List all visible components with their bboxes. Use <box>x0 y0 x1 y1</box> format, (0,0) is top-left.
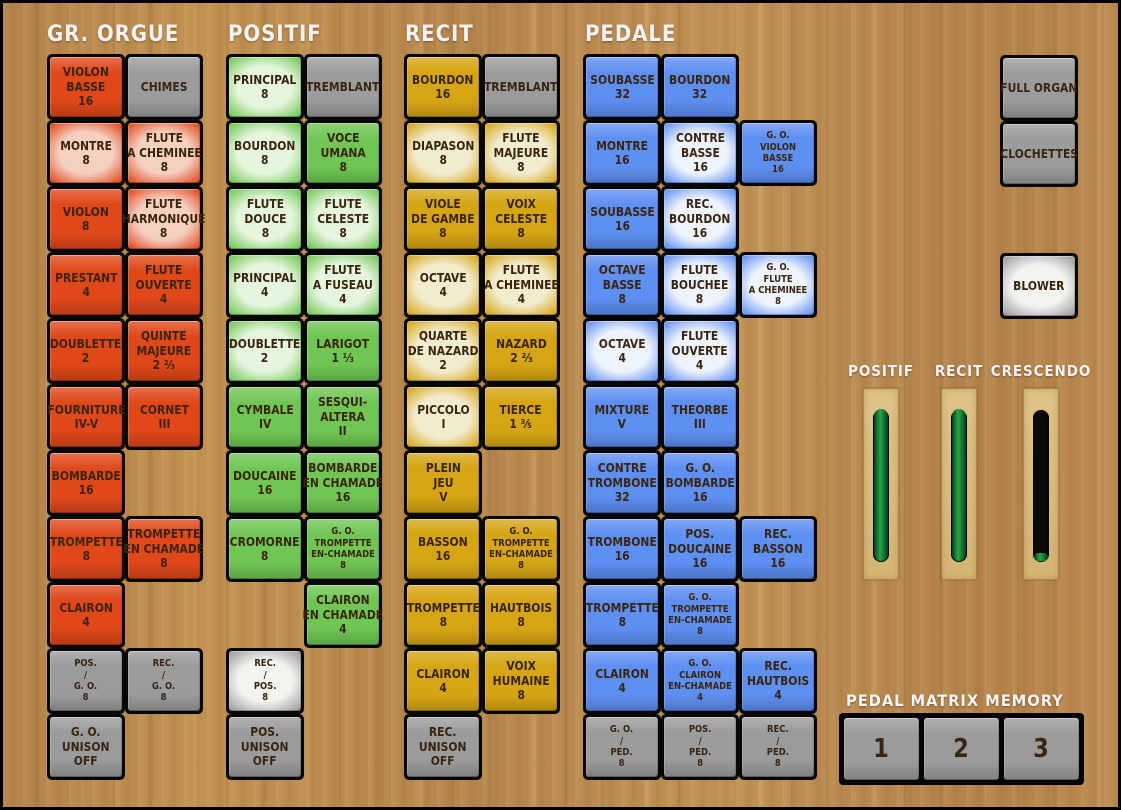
button-face: G. O.VIOLONBASSE16 <box>742 123 814 183</box>
button-label: SOUBASSE32 <box>590 73 654 102</box>
label-line: OFF <box>419 754 467 769</box>
label-line: HAUTBOIS <box>490 601 552 616</box>
slider-slot <box>1033 410 1049 562</box>
stop-viole-de-gambe-8[interactable]: VIOLEDE GAMBE8 <box>404 186 482 252</box>
crescendo-slider[interactable] <box>1023 388 1059 580</box>
stop-bombarde-16[interactable]: BOMBARDE16 <box>47 450 125 516</box>
stop-sesqui-altera-ii[interactable]: SESQUI-ALTERAII <box>304 384 382 450</box>
stop-prestant-4[interactable]: PRESTANT4 <box>47 252 125 318</box>
label-line: PICCOLO <box>417 403 469 418</box>
label-line: 16 <box>669 226 730 241</box>
stop-tremblant[interactable]: TREMBLANT <box>304 54 382 120</box>
label-line: 16 <box>753 556 803 571</box>
label-line: 8 <box>74 692 97 703</box>
stop-doublette-2[interactable]: DOUBLETTE2 <box>226 318 304 384</box>
stop-voce-umana-8[interactable]: VOCEUMANA8 <box>304 120 382 186</box>
button-label: PICCOLOI <box>417 403 469 432</box>
label-line: MAJEURE <box>137 344 192 359</box>
label-line: 8 <box>63 219 109 234</box>
button-face: FLUTEA CHEMINEE8 <box>128 123 200 183</box>
stop-plein-jeu-v[interactable]: PLEINJEUV <box>404 450 482 516</box>
button-face: VOIXHUMAINE8 <box>485 651 557 711</box>
recit-slider[interactable] <box>941 388 977 580</box>
button-face: FLUTEMAJEURE8 <box>485 123 557 183</box>
button-label: PRINCIPAL4 <box>233 271 296 300</box>
button-face: FLUTEOUVERTE4 <box>128 255 200 315</box>
button-face: BOMBARDE16 <box>50 453 122 513</box>
button-label: CYMBALEIV <box>236 403 293 432</box>
label-line: VIOLON <box>63 65 109 80</box>
label-line: QUARTE <box>408 329 479 344</box>
stop-flute-a-cheminee-4[interactable]: FLUTEA CHEMINEE4 <box>482 252 560 318</box>
label-line: 8 <box>610 758 633 769</box>
stop-clairon-4[interactable]: CLAIRON4 <box>583 648 661 714</box>
label-line: 4 <box>484 292 559 307</box>
button-label: G. O.UNISONOFF <box>62 725 110 769</box>
label-line: TROMPETTE <box>668 604 732 615</box>
button-label: CONTRETROMBONE32 <box>587 461 656 505</box>
stop-voix-humaine-8[interactable]: VOIXHUMAINE8 <box>482 648 560 714</box>
button-face: DOUBLETTE2 <box>50 321 122 381</box>
stop-flute-majeure-8[interactable]: FLUTEMAJEURE8 <box>482 120 560 186</box>
stop-trompette-en-chamade-8[interactable]: TROMPETTEEN CHAMADE8 <box>125 516 203 582</box>
button-label: FLUTEA CHEMINEE8 <box>127 131 202 175</box>
label-line: TROMPETTE <box>124 527 205 542</box>
stop-flute-ouverte-4[interactable]: FLUTEOUVERTE4 <box>661 318 739 384</box>
label-line: 8 <box>490 615 552 630</box>
label-line: SOUBASSE <box>590 73 654 88</box>
button-label: G. O.FLUTEA CHEMINEE8 <box>749 262 808 307</box>
label-line: 4 <box>59 615 112 630</box>
label-line: A CHEMINEE <box>749 285 808 296</box>
button-label: TROMPETTE8 <box>50 535 123 564</box>
label-line: 8 <box>127 160 202 175</box>
button-label: MIXTUREV <box>595 403 650 432</box>
label-line: FLUTE <box>671 263 729 278</box>
label-line: LARIGOT <box>317 337 370 352</box>
label-line: SESQUI- <box>318 395 367 410</box>
memory-button-label: 3 <box>1034 734 1050 764</box>
label-line: DOUCAINE <box>233 469 296 484</box>
label-line: / <box>767 736 789 747</box>
stop-flute-a-fuseau-4[interactable]: FLUTEA FUSEAU4 <box>304 252 382 318</box>
button-label: FLUTEA CHEMINEE4 <box>484 263 559 307</box>
stop-g-o-ped-8[interactable]: G. O./PED.8 <box>583 714 661 780</box>
label-line: 32 <box>669 87 730 102</box>
memory-button-2[interactable]: 2 <box>924 718 999 780</box>
label-line: BOURDON <box>234 139 295 154</box>
stop-tierce-1[interactable]: TIERCE1 ⅗ <box>482 384 560 450</box>
label-line: BOURDON <box>669 212 730 227</box>
button-face: REC./G. O.8 <box>128 651 200 711</box>
label-line: 8 <box>230 549 300 564</box>
stop-violon-8[interactable]: VIOLON8 <box>47 186 125 252</box>
label-line: TROMPETTE <box>50 535 123 550</box>
label-line: BOURDON <box>412 73 473 88</box>
stop-rec-g-o-8[interactable]: REC./G. O.8 <box>125 648 203 714</box>
button-label: TREMBLANT <box>306 80 379 95</box>
button-face: REC./POS.8 <box>229 651 301 711</box>
stop-quarte-de-nazard-2[interactable]: QUARTEDE NAZARD2 <box>404 318 482 384</box>
button-face: FULL ORGAN <box>1003 58 1075 118</box>
label-line: FLUTE <box>749 274 808 285</box>
label-line: EN CHAMADE <box>303 608 384 623</box>
stop-contre-basse-16[interactable]: CONTREBASSE16 <box>661 120 739 186</box>
button-face: FLUTEA FUSEAU4 <box>307 255 379 315</box>
button-label: G. O.TROMPETTEEN-CHAMADE8 <box>668 592 732 637</box>
label-line: A CHEMINEE <box>127 146 202 161</box>
label-line: G. O. <box>665 461 734 476</box>
stop-violon-basse-16[interactable]: VIOLONBASSE16 <box>47 54 125 120</box>
slider-slot <box>951 410 967 562</box>
label-line: 4 <box>303 622 384 637</box>
stop-larigot-1[interactable]: LARIGOT1 ⅓ <box>304 318 382 384</box>
button-face: FLUTEOUVERTE4 <box>664 321 736 381</box>
button-face: G. O.UNISONOFF <box>50 717 122 777</box>
stop-trompette-8[interactable]: TROMPETTE8 <box>583 582 661 648</box>
stop-pos-doucaine-16[interactable]: POS.DOUCAINE16 <box>661 516 739 582</box>
button-label: FLUTECELESTE8 <box>317 197 369 241</box>
stop-voix-celeste-8[interactable]: VOIXCELESTE8 <box>482 186 560 252</box>
label-line: 4 <box>416 681 469 696</box>
label-line: 16 <box>590 219 654 234</box>
stop-rec-basson-16[interactable]: REC.BASSON16 <box>739 516 817 582</box>
stop-pos-unison-off[interactable]: POS.UNISONOFF <box>226 714 304 780</box>
label-line: 1 ⅓ <box>317 351 370 366</box>
button-label: CLAIRON4 <box>59 601 112 630</box>
stop-doublette-2[interactable]: DOUBLETTE2 <box>47 318 125 384</box>
label-line: EN-CHAMADE <box>668 681 732 692</box>
label-line: / <box>152 670 175 681</box>
button-face: FOURNITUREIV-V <box>50 387 122 447</box>
label-line: 16 <box>233 483 296 498</box>
stop-flute-douce-8[interactable]: FLUTEDOUCE8 <box>226 186 304 252</box>
button-face: FLUTEDOUCE8 <box>229 189 301 249</box>
button-face: REC.UNISONOFF <box>407 717 479 777</box>
stop-g-o-clairon-en-chamade-4[interactable]: G. O.CLAIRONEN-CHAMADE4 <box>661 648 739 714</box>
label-line: DE GAMBE <box>411 212 474 227</box>
label-line: / <box>254 670 277 681</box>
label-line: 4 <box>55 285 117 300</box>
label-line: EN CHAMADE <box>303 476 384 491</box>
button-face: CLAIRON4 <box>586 651 658 711</box>
button-label: QUINTEMAJEURE2 ⅔ <box>137 329 192 373</box>
button-face: MIXTUREV <box>586 387 658 447</box>
label-line: G. O. <box>74 681 97 692</box>
label-line: OUVERTE <box>136 278 192 293</box>
stop-bombarde-en-chamade-16[interactable]: BOMBARDEEN CHAMADE16 <box>304 450 382 516</box>
stop-quinte-majeure-2[interactable]: QUINTEMAJEURE2 ⅔ <box>125 318 203 384</box>
stop-soubasse-32[interactable]: SOUBASSE32 <box>583 54 661 120</box>
button-label: PRINCIPAL8 <box>233 73 296 102</box>
stop-fourniture-iv-v[interactable]: FOURNITUREIV-V <box>47 384 125 450</box>
stop-flute-a-cheminee-8[interactable]: FLUTEA CHEMINEE8 <box>125 120 203 186</box>
stop-pos-g-o-8[interactable]: POS./G. O.8 <box>47 648 125 714</box>
stop-clairon-4[interactable]: CLAIRON4 <box>404 648 482 714</box>
stop-g-o-unison-off[interactable]: G. O.UNISONOFF <box>47 714 125 780</box>
stop-pos-ped-8[interactable]: POS./PED.8 <box>661 714 739 780</box>
slider-label-recit: RECIT <box>935 362 983 380</box>
stop-flute-harmonique-8[interactable]: FLUTEHARMONIQUE8 <box>125 186 203 252</box>
button-face: FLUTEA CHEMINEE4 <box>485 255 557 315</box>
button-label: TROMPETTE8 <box>407 601 480 630</box>
button-label: VOIXHUMAINE8 <box>492 659 549 703</box>
stop-montre-16[interactable]: MONTRE16 <box>583 120 661 186</box>
label-line: DIAPASON <box>412 139 474 154</box>
label-line: 4 <box>668 692 732 703</box>
button-face: REC.BASSON16 <box>742 519 814 579</box>
slider-label-positif: POSITIF <box>848 362 914 380</box>
button-label: FLUTEHARMONIQUE8 <box>122 197 206 241</box>
button-label: CORNETIII <box>140 403 189 432</box>
button-label: POS./PED.8 <box>689 724 712 769</box>
button-face: SOUBASSE32 <box>586 57 658 117</box>
button-label: G. O./PED.8 <box>610 724 633 769</box>
pedal-matrix-memory: 123 <box>839 713 1084 785</box>
button-face: CLAIRON4 <box>50 585 122 645</box>
stop-theorbe-iii[interactable]: THEORBEIII <box>661 384 739 450</box>
label-line: FLUTE <box>122 197 206 212</box>
button-label: REC.BOURDON16 <box>669 197 730 241</box>
stop-contre-trombone-32[interactable]: CONTRETROMBONE32 <box>583 450 661 516</box>
stop-flute-bouchee-8[interactable]: FLUTEBOUCHEE8 <box>661 252 739 318</box>
label-line: 16 <box>665 490 734 505</box>
label-line: CHIMES <box>141 80 188 95</box>
button-full-organ[interactable]: FULL ORGAN <box>1000 55 1078 121</box>
button-label: POS./G. O.8 <box>74 658 97 703</box>
label-line: PRINCIPAL <box>233 271 296 286</box>
button-label: TREMBLANT <box>484 80 557 95</box>
label-line: 2 ⅔ <box>496 351 547 366</box>
label-line: QUINTE <box>137 329 192 344</box>
stop-basson-16[interactable]: BASSON16 <box>404 516 482 582</box>
stop-cromorne-8[interactable]: CROMORNE8 <box>226 516 304 582</box>
stop-rec-unison-off[interactable]: REC.UNISONOFF <box>404 714 482 780</box>
label-line: 8 <box>749 296 808 307</box>
label-line: EN-CHAMADE <box>489 549 553 560</box>
stop-g-o-violon-basse-16[interactable]: G. O.VIOLONBASSE16 <box>739 120 817 186</box>
button-face: DIAPASON8 <box>407 123 479 183</box>
button-face: TROMBONE16 <box>586 519 658 579</box>
stop-nazard-2[interactable]: NAZARD2 ⅔ <box>482 318 560 384</box>
label-line: 8 <box>311 560 375 571</box>
stop-principal-8[interactable]: PRINCIPAL8 <box>226 54 304 120</box>
stop-g-o-trompette-en-chamade-8[interactable]: G. O.TROMPETTEEN-CHAMADE8 <box>661 582 739 648</box>
stop-bourdon-8[interactable]: BOURDON8 <box>226 120 304 186</box>
button-face: CHIMES <box>128 57 200 117</box>
stop-octave-4[interactable]: OCTAVE4 <box>404 252 482 318</box>
label-line: TROMPETTE <box>586 601 659 616</box>
label-line: UNISON <box>62 740 110 755</box>
label-line: CLAIRON <box>59 601 112 616</box>
button-label: TROMBONE16 <box>587 535 656 564</box>
stop-g-o-trompette-en-chamade-8[interactable]: G. O.TROMPETTEEN-CHAMADE8 <box>482 516 560 582</box>
label-line: PED. <box>610 747 633 758</box>
label-line: G. O. <box>760 130 796 141</box>
label-line: FLUTE <box>484 263 559 278</box>
button-face: TROMPETTEEN CHAMADE8 <box>128 519 200 579</box>
label-line: A CHEMINEE <box>484 278 559 293</box>
stop-hautbois-8[interactable]: HAUTBOIS8 <box>482 582 560 648</box>
button-label: NAZARD2 ⅔ <box>496 337 547 366</box>
button-face: TROMPETTE8 <box>586 585 658 645</box>
label-line: 4 <box>672 358 728 373</box>
button-face: QUINTEMAJEURE2 ⅔ <box>128 321 200 381</box>
stop-mixture-v[interactable]: MIXTUREV <box>583 384 661 450</box>
button-face: OCTAVE4 <box>586 321 658 381</box>
label-line: PED. <box>689 747 712 758</box>
label-line: SOUBASSE <box>590 205 654 220</box>
stop-piccolo-i[interactable]: PICCOLOI <box>404 384 482 450</box>
button-face: QUARTEDE NAZARD2 <box>407 321 479 381</box>
stop-doucaine-16[interactable]: DOUCAINE16 <box>226 450 304 516</box>
label-line: 8 <box>60 153 112 168</box>
label-line: BOMBARDE <box>303 461 384 476</box>
label-line: G. O. <box>668 592 732 603</box>
label-line: EN CHAMADE <box>124 542 205 557</box>
stop-principal-4[interactable]: PRINCIPAL4 <box>226 252 304 318</box>
button-label: OCTAVEBASSE8 <box>599 263 646 307</box>
stop-clairon-en-chamade-4[interactable]: CLAIRONEN CHAMADE4 <box>304 582 382 648</box>
label-line: III <box>140 417 189 432</box>
button-label: BOURDON32 <box>669 73 730 102</box>
label-line: G. O. <box>749 262 808 273</box>
button-label: POS.UNISONOFF <box>241 725 289 769</box>
button-face: THEORBEIII <box>664 387 736 447</box>
label-line: / <box>74 670 97 681</box>
stop-trompette-8[interactable]: TROMPETTE8 <box>404 582 482 648</box>
label-line: / <box>689 736 712 747</box>
label-line: PRINCIPAL <box>233 73 296 88</box>
button-face: CLAIRON4 <box>407 651 479 711</box>
label-line: FLUTE <box>672 329 728 344</box>
label-line: FLUTE <box>244 197 286 212</box>
label-line: HUMAINE <box>492 674 549 689</box>
button-label: DOUBLETTE2 <box>50 337 121 366</box>
label-line: 2 ⅔ <box>137 358 192 373</box>
stop-bourdon-32[interactable]: BOURDON32 <box>661 54 739 120</box>
stop-rec-bourdon-16[interactable]: REC.BOURDON16 <box>661 186 739 252</box>
button-label: TIERCE1 ⅗ <box>500 403 542 432</box>
label-line: TIERCE <box>500 403 542 418</box>
label-line: IV <box>236 417 293 432</box>
button-face: OCTAVE4 <box>407 255 479 315</box>
button-face: PLEINJEUV <box>407 453 479 513</box>
label-line: 4 <box>595 681 648 696</box>
label-line: CELESTE <box>317 212 369 227</box>
positif-slider[interactable] <box>863 388 899 580</box>
label-line: 8 <box>122 226 206 241</box>
label-line: BASSE <box>760 153 796 164</box>
memory-button-3[interactable]: 3 <box>1004 718 1079 780</box>
button-face: TROMPETTE8 <box>50 519 122 579</box>
stop-cymbale-iv[interactable]: CYMBALEIV <box>226 384 304 450</box>
label-line: 1 ⅗ <box>500 417 542 432</box>
label-line: 4 <box>233 285 296 300</box>
stop-g-o-flute-a-cheminee-8[interactable]: G. O.FLUTEA CHEMINEE8 <box>739 252 817 318</box>
button-face: BOURDON16 <box>407 57 479 117</box>
stop-tremblant[interactable]: TREMBLANT <box>482 54 560 120</box>
button-face: FLUTEBOUCHEE8 <box>664 255 736 315</box>
label-line: 2 <box>50 351 121 366</box>
stop-diapason-8[interactable]: DIAPASON8 <box>404 120 482 186</box>
division-header-gr-orgue: GR. ORGUE <box>47 22 179 47</box>
button-clochettes[interactable]: CLOCHETTES <box>1000 121 1078 187</box>
slider-slot <box>873 410 889 562</box>
button-face: CROMORNE8 <box>229 519 301 579</box>
button-label: REC./PED.8 <box>767 724 789 769</box>
label-line: EN-CHAMADE <box>668 615 732 626</box>
button-label: REC.BASSON16 <box>753 527 803 571</box>
label-line: 8 <box>244 226 286 241</box>
label-line: 8 <box>50 549 123 564</box>
stop-flute-ouverte-4[interactable]: FLUTEOUVERTE4 <box>125 252 203 318</box>
label-line: CLAIRON <box>668 670 732 681</box>
stop-clairon-4[interactable]: CLAIRON4 <box>47 582 125 648</box>
label-line: CLAIRON <box>416 667 469 682</box>
stop-rec-hautbois-4[interactable]: REC.HAUTBOIS4 <box>739 648 817 714</box>
stop-rec-ped-8[interactable]: REC./PED.8 <box>739 714 817 780</box>
division-header-recit: RECIT <box>405 22 474 47</box>
stop-soubasse-16[interactable]: SOUBASSE16 <box>583 186 661 252</box>
organ-console: GR. ORGUE POSITIF RECIT PEDALE POSITIF R… <box>0 0 1121 810</box>
button-blower[interactable]: BLOWER <box>1000 253 1078 319</box>
stop-bourdon-16[interactable]: BOURDON16 <box>404 54 482 120</box>
label-line: CYMBALE <box>236 403 293 418</box>
stop-octave-4[interactable]: OCTAVE4 <box>583 318 661 384</box>
label-line: 8 <box>234 153 295 168</box>
memory-button-label: 2 <box>954 734 970 764</box>
label-line: 4 <box>599 351 646 366</box>
label-line: CROMORNE <box>230 535 300 550</box>
label-line: G. O. <box>62 725 110 740</box>
button-label: TROMPETTE8 <box>586 601 659 630</box>
button-label: CLAIRON4 <box>595 667 648 696</box>
label-line: I <box>417 417 469 432</box>
label-line: OCTAVE <box>599 263 646 278</box>
button-label: VIOLON8 <box>63 205 109 234</box>
stop-montre-8[interactable]: MONTRE8 <box>47 120 125 186</box>
button-face: NAZARD2 ⅔ <box>485 321 557 381</box>
label-line: 16 <box>303 490 384 505</box>
button-label: FLUTEA FUSEAU4 <box>313 263 373 307</box>
memory-button-1[interactable]: 1 <box>844 718 919 780</box>
label-line: 8 <box>320 160 365 175</box>
label-line: BLOWER <box>1013 279 1064 294</box>
button-label: CHIMES <box>141 80 188 95</box>
label-line: 8 <box>152 692 175 703</box>
stop-cornet-iii[interactable]: CORNETIII <box>125 384 203 450</box>
label-line: DE NAZARD <box>408 344 479 359</box>
stop-octave-basse-8[interactable]: OCTAVEBASSE8 <box>583 252 661 318</box>
stop-trombone-16[interactable]: TROMBONE16 <box>583 516 661 582</box>
stop-rec-pos-8[interactable]: REC./POS.8 <box>226 648 304 714</box>
label-line: 8 <box>317 226 369 241</box>
button-label: FLUTEDOUCE8 <box>244 197 286 241</box>
stop-flute-celeste-8[interactable]: FLUTECELESTE8 <box>304 186 382 252</box>
label-line: 32 <box>587 490 656 505</box>
label-line: II <box>318 424 367 439</box>
button-face: SESQUI-ALTERAII <box>307 387 379 447</box>
label-line: UMANA <box>320 146 365 161</box>
button-face: VIOLON8 <box>50 189 122 249</box>
button-label: G. O.BOMBARDE16 <box>665 461 734 505</box>
stop-chimes[interactable]: CHIMES <box>125 54 203 120</box>
stop-g-o-trompette-en-chamade-8[interactable]: G. O.TROMPETTEEN-CHAMADE8 <box>304 516 382 582</box>
stop-g-o-bombarde-16[interactable]: G. O.BOMBARDE16 <box>661 450 739 516</box>
button-label: BOURDON8 <box>234 139 295 168</box>
stop-trompette-8[interactable]: TROMPETTE8 <box>47 516 125 582</box>
